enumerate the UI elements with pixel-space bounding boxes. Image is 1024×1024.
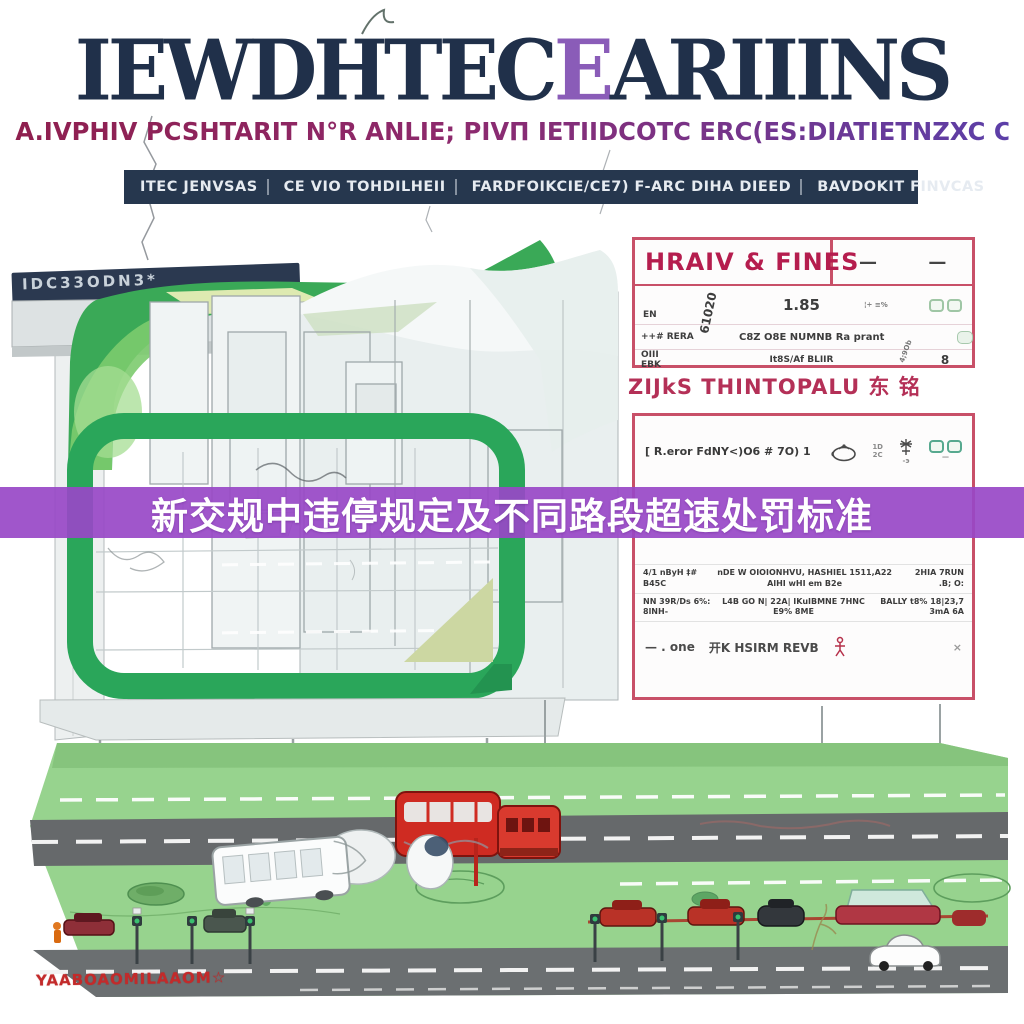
white-car <box>870 935 940 971</box>
lane-dash-line <box>60 795 1005 800</box>
table-row: 4/1 nByH ‡# B45C nDE W OIOIONHVU, HASHIE… <box>635 564 972 593</box>
banner-segment: ITEC JENVSAS <box>140 179 258 195</box>
dash: — <box>859 252 877 273</box>
cell: 2HIA 7RUN .B; O: <box>906 568 964 590</box>
road-stamp-text: YAABOAOMILAAOM☆ <box>36 968 226 989</box>
cell: BALLY t8% 18|23,7 3mA 6A <box>871 597 964 619</box>
banner-segment: CE VIO TOHDILHEII <box>267 179 446 195</box>
facade-panels <box>150 296 562 648</box>
red-bus <box>396 792 560 886</box>
table-row: ++# RERA C8Z O8E NUMNB Ra prant 4;9Ob <box>635 324 972 349</box>
manhole <box>128 883 184 905</box>
cell: 1D <box>872 443 883 451</box>
rules-table: [ R.eror FdNY<)O6 # 7O) 1 1D 2C -э — <box>632 413 975 700</box>
building-sign-text: IDC33ODN3* <box>22 271 158 294</box>
teapot-icon <box>830 440 858 462</box>
median-oval <box>416 871 504 903</box>
figure-scribble <box>812 904 836 950</box>
glasses-icon: — <box>929 440 962 461</box>
awning <box>12 297 300 347</box>
olive-ramp <box>404 578 493 662</box>
cell: NN 39R/Ds 6%: 8lNH- <box>643 597 716 619</box>
base-slab <box>40 698 565 740</box>
worker-figure <box>53 922 61 930</box>
subtitle: A.IVPHIV PCSHTARIT N°R ANLIE; PIVΠ IETII… <box>15 117 1008 146</box>
cell: — <box>942 453 949 461</box>
headline-text: 新交规中违停规定及不同路段超速处罚标准 <box>151 486 873 540</box>
road-scene <box>30 743 1010 997</box>
top-banner: ITEC JENVSAS CE VIO TOHDILHEII FARDFOIKC… <box>124 170 918 204</box>
cell: It8S/Af BLIIR <box>739 355 864 365</box>
yellow-roof-band <box>166 288 322 314</box>
page-title: IEWDHTECEARIIINS <box>0 21 1024 120</box>
green-blob-icon <box>957 331 973 344</box>
small-cars <box>53 909 246 943</box>
poster: IEWDHTECEARIIINS A.IVPHIV PCSHTARIT N°R … <box>0 0 1024 1024</box>
traffic-poles <box>132 908 743 964</box>
support-legs <box>100 738 487 747</box>
white-bus <box>211 822 455 911</box>
fines-table: HRAIV & FINES — — EN 61020 1.85 ¦÷ ≡% ++… <box>632 237 975 368</box>
cell: × <box>953 641 962 654</box>
title-right: ARIIINS <box>610 21 949 120</box>
interior-grid <box>96 448 498 670</box>
cell: [ R.eror FdNY<)O6 # 7O) 1 <box>645 445 816 458</box>
cell: 8 <box>918 353 972 367</box>
parked-cars-row <box>588 890 988 950</box>
title-left: IEWDHTEC <box>75 21 554 120</box>
cell: ++# RERA <box>635 332 681 342</box>
table-row: [ R.eror FdNY<)O6 # 7O) 1 1D 2C -э — <box>635 416 972 486</box>
green-rings-icon <box>918 299 972 312</box>
cell: C8Z O8E NUMNB Ra prant <box>739 332 884 343</box>
cell: 1.85 <box>739 296 864 314</box>
title-accent-letter: E <box>554 21 610 120</box>
cell: EN <box>635 310 681 324</box>
cell: -э <box>902 457 909 465</box>
cell: 开K HSIRM REVB <box>709 639 819 656</box>
cell: OIII EBK <box>635 350 681 370</box>
cell: 2C <box>873 451 883 459</box>
cell: ¦÷ ≡% <box>864 301 918 309</box>
fines-table-header: HRAIV & FINES <box>635 240 833 284</box>
table-row: OIII EBK It8S/Af BLIIR 8 <box>635 349 972 370</box>
cell: L4B GO N| 22A| IKuIBMNE 7HNC E9% 8ME <box>722 597 865 619</box>
banner-segment: FARDFOIKCIE/CE7) F-ARC DIHA DIEED <box>455 179 792 195</box>
red-figure-icon <box>833 636 847 658</box>
table-caption: ZIJkS THINTOPALU 东 铭 <box>628 371 921 401</box>
cell: nDE W OIOIONHVU, HASHIEL 1511,A22 AlHI w… <box>709 568 900 590</box>
banner-segment: BAVDOKIT FINVCAS <box>800 179 984 195</box>
fines-table-header-dashes: — — <box>833 240 972 284</box>
dash: — <box>928 252 946 273</box>
table-row: NN 39R/Ds 6%: 8lNH- L4B GO N| 22A| IKuIB… <box>635 593 972 623</box>
tree-icon: -э <box>897 437 915 465</box>
headline-banner: 新交规中违停规定及不同路段超速处罚标准 <box>0 487 1024 538</box>
cell: 4/1 nByH ‡# B45C <box>643 568 703 590</box>
meter-label: 1D 2C <box>872 443 883 460</box>
cell: — . one <box>645 640 695 654</box>
green-platform <box>30 743 1008 997</box>
table-row: — . one 开K HSIRM REVB × <box>635 622 972 658</box>
upper-road <box>30 812 1008 866</box>
green-frame <box>80 426 512 686</box>
